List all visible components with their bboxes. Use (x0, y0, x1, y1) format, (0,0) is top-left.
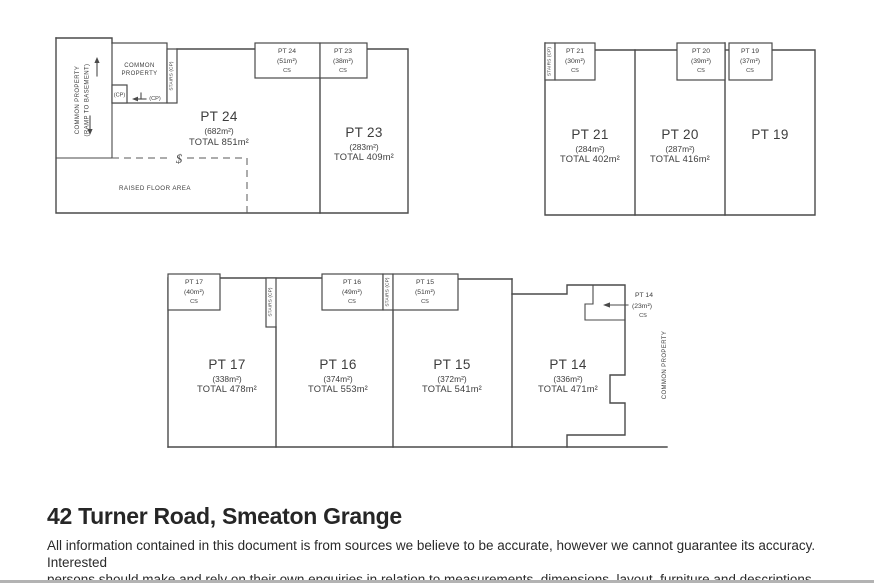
pt20-cs-tag: CS (697, 68, 705, 74)
stairs-strip-a-label: STAIRS (CP) (169, 61, 175, 91)
pt21-name: PT 21 (571, 127, 608, 142)
strata-plan-page: $ COMMON PROPERTY (RAMP TO BASEMENT) COM… (0, 0, 874, 583)
pt15-cs-area: (51m²) (415, 289, 435, 296)
pt17-cs-tag: CS (190, 299, 198, 305)
pt19-cs-tag: CS (746, 68, 754, 74)
pt14-cs-niche-wall (585, 285, 625, 320)
pt16-cs-area: (49m²) (342, 289, 362, 296)
pt23-area: (283m²) (349, 142, 379, 152)
pt16-cs-name: PT 16 (343, 279, 361, 286)
pt16-total: TOTAL 553m² (308, 384, 368, 394)
pt14-cs-arrowhead-icon (603, 302, 610, 307)
section-a-top-left-wall (56, 38, 112, 43)
floor-plan-drawing: $ COMMON PROPERTY (RAMP TO BASEMENT) COM… (0, 0, 874, 500)
pt24-name: PT 24 (200, 109, 237, 124)
ramp-label-line2: (RAMP TO BASEMENT) (85, 64, 91, 137)
pt23-cs-tag: CS (339, 68, 347, 74)
disclaimer: All information contained in this docume… (47, 537, 874, 583)
pt24-cs-name: PT 24 (278, 48, 296, 55)
pt21-cs-name: PT 21 (566, 48, 584, 55)
pt24-total: TOTAL 851m² (189, 137, 249, 147)
pt16-area: (374m²) (323, 374, 353, 384)
pt24-cs-area: (51m²) (277, 58, 297, 65)
common-property-right-label: COMMON PROPERTY (662, 331, 668, 400)
pt21-total: TOTAL 402m² (560, 154, 620, 164)
pt16-cs-tag: CS (348, 299, 356, 305)
section-pt21-pt20-pt19: STAIRS (CP) PT 21 (30m²) CS PT 20 (39m²)… (545, 43, 815, 215)
pt17-cs-name: PT 17 (185, 279, 203, 286)
cp-small-room-label: (CP) (114, 93, 126, 99)
ramp-up-arrowhead-icon (94, 57, 99, 63)
pt19-name: PT 19 (751, 127, 788, 142)
pt15-total: TOTAL 541m² (422, 384, 482, 394)
section-break-marker: $ (176, 151, 183, 166)
pt19-cs-area: (37m²) (740, 58, 760, 65)
pt15-cs-tag: CS (421, 299, 429, 305)
cp-annotation: (CP) (149, 96, 161, 102)
pt17-name: PT 17 (208, 357, 245, 372)
pt19-cs-name: PT 19 (741, 48, 759, 55)
common-property-room-label-1: COMMON (124, 63, 154, 69)
pt20-area: (287m²) (665, 144, 695, 154)
section-pt24-pt23: $ COMMON PROPERTY (RAMP TO BASEMENT) COM… (56, 38, 408, 213)
pt23-cs-name: PT 23 (334, 48, 352, 55)
pt20-total: TOTAL 416m² (650, 154, 710, 164)
pt14-name: PT 14 (549, 357, 586, 372)
pt14-cs-tag: CS (639, 313, 647, 319)
pt20-cs-area: (39m²) (691, 58, 711, 65)
pt14-total: TOTAL 471m² (538, 384, 598, 394)
pt20-cs-name: PT 20 (692, 48, 710, 55)
page-title: 42 Turner Road, Smeaton Grange (47, 503, 402, 530)
pt24-cs-tag: CS (283, 68, 291, 74)
pt15-area: (372m²) (437, 374, 467, 384)
pt23-cs-area: (38m²) (333, 58, 353, 65)
pt15-cs-name: PT 15 (416, 279, 434, 286)
pt23-total: TOTAL 409m² (334, 152, 394, 162)
pt14-cs-name: PT 14 (635, 292, 653, 299)
pt24-area: (682m²) (204, 126, 234, 136)
pt14-area: (336m²) (553, 374, 583, 384)
pt14-cs-area: (23m²) (632, 303, 652, 310)
disclaimer-line1: All information contained in this docume… (47, 537, 874, 571)
pt17-area: (338m²) (212, 374, 242, 384)
stairs-strip-c2-label: STAIRS (CP) (385, 277, 391, 307)
pt17-cs-area: (40m²) (184, 289, 204, 296)
ramp-label-line1: COMMON PROPERTY (75, 66, 81, 135)
pt23-name: PT 23 (345, 125, 382, 140)
pt15-name: PT 15 (433, 357, 470, 372)
pt21-area: (284m²) (575, 144, 605, 154)
section-pt17-pt16-pt15-pt14: PT 17 (40m²) CS STAIRS (CP) PT 16 (49m²)… (168, 274, 668, 447)
pt17-total: TOTAL 478m² (197, 384, 257, 394)
common-property-room-label-2: PROPERTY (121, 71, 157, 77)
raised-floor-area-label: RAISED FLOOR AREA (119, 185, 191, 192)
pt21-cs-area: (30m²) (565, 58, 585, 65)
pt16-name: PT 16 (319, 357, 356, 372)
stairs-strip-c1-label: STAIRS (CP) (268, 287, 274, 317)
pt20-name: PT 20 (661, 127, 698, 142)
pt21-cs-tag: CS (571, 68, 579, 74)
stairs-strip-b-label: STAIRS (CP) (547, 47, 553, 77)
